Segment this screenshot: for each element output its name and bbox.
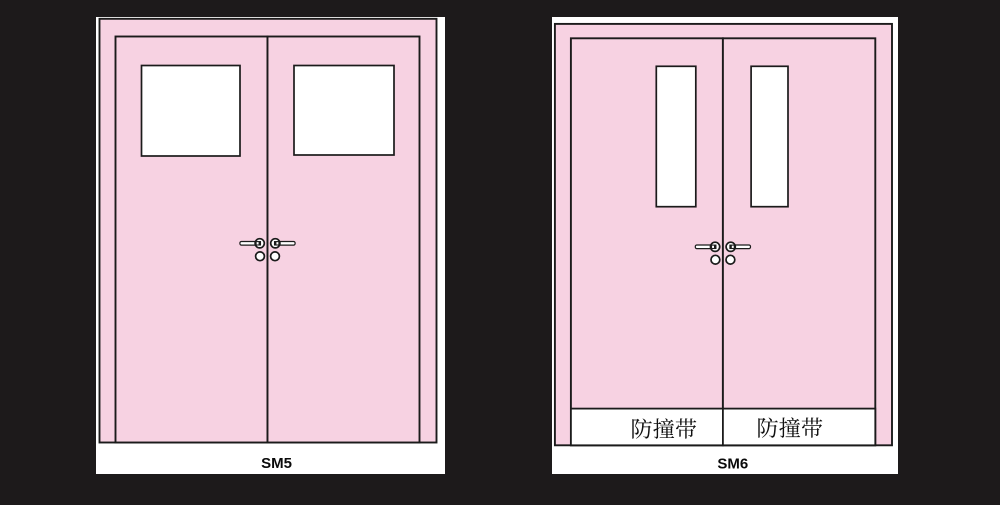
svg-text:SM5: SM5 [261,455,292,472]
svg-text:SM6: SM6 [717,456,748,473]
